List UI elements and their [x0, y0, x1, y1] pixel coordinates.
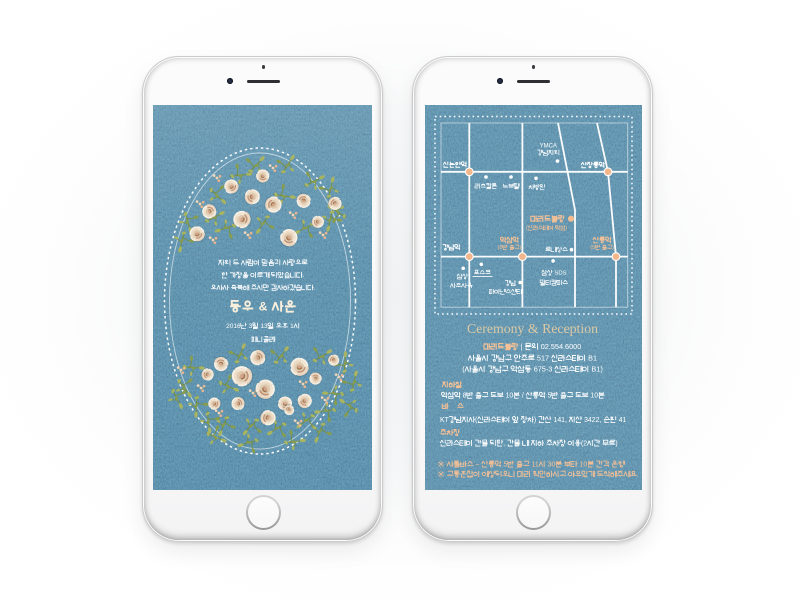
svg-text:(2: (2	[581, 440, 587, 447]
svg-text:02.554.6000: 02.554.6000	[541, 342, 582, 351]
svg-text:10: 10	[590, 393, 598, 400]
svg-text:(: (	[526, 226, 528, 232]
svg-text:.: .	[303, 272, 305, 279]
svg-text:675-3: 675-3	[534, 364, 553, 373]
svg-text:13: 13	[260, 323, 268, 330]
svg-text:SDS: SDS	[554, 271, 566, 277]
svg-text:141,: 141,	[554, 417, 567, 424]
svg-text:): )	[612, 245, 614, 251]
svg-text:B1): B1)	[591, 364, 602, 373]
svg-text:8: 8	[463, 393, 467, 400]
svg-text:Ceremony & Reception: Ceremony & Reception	[467, 321, 598, 336]
svg-text:10: 10	[506, 393, 514, 400]
svg-text:5: 5	[548, 393, 552, 400]
svg-text:/: /	[522, 393, 524, 400]
svg-text:11: 11	[532, 461, 539, 468]
svg-text:YMCA: YMCA	[540, 144, 557, 150]
svg-text:3422,: 3422,	[584, 417, 601, 424]
svg-text:1: 1	[290, 323, 294, 330]
svg-text:KT: KT	[440, 417, 450, 424]
svg-text:(5: (5	[590, 245, 595, 251]
svg-text:2016: 2016	[226, 323, 241, 330]
svg-text:3: 3	[249, 323, 253, 330]
svg-text:30: 30	[548, 461, 556, 468]
svg-text:517: 517	[537, 353, 549, 362]
svg-text:–: –	[475, 461, 479, 468]
svg-text:): )	[565, 226, 567, 232]
svg-text:5: 5	[504, 461, 508, 468]
svg-text:&: &	[259, 299, 269, 313]
svg-text:): )	[520, 245, 522, 251]
svg-text:B1: B1	[588, 353, 597, 362]
svg-text:41: 41	[619, 417, 627, 424]
svg-text:.: .	[314, 285, 316, 292]
svg-text:.: .	[637, 471, 639, 478]
svg-text:,: ,	[503, 440, 505, 447]
svg-text:10: 10	[580, 461, 588, 468]
svg-text:): )	[534, 417, 536, 424]
svg-text:(8: (8	[498, 245, 503, 251]
svg-text:|: |	[521, 342, 523, 351]
svg-text:): )	[615, 440, 617, 447]
